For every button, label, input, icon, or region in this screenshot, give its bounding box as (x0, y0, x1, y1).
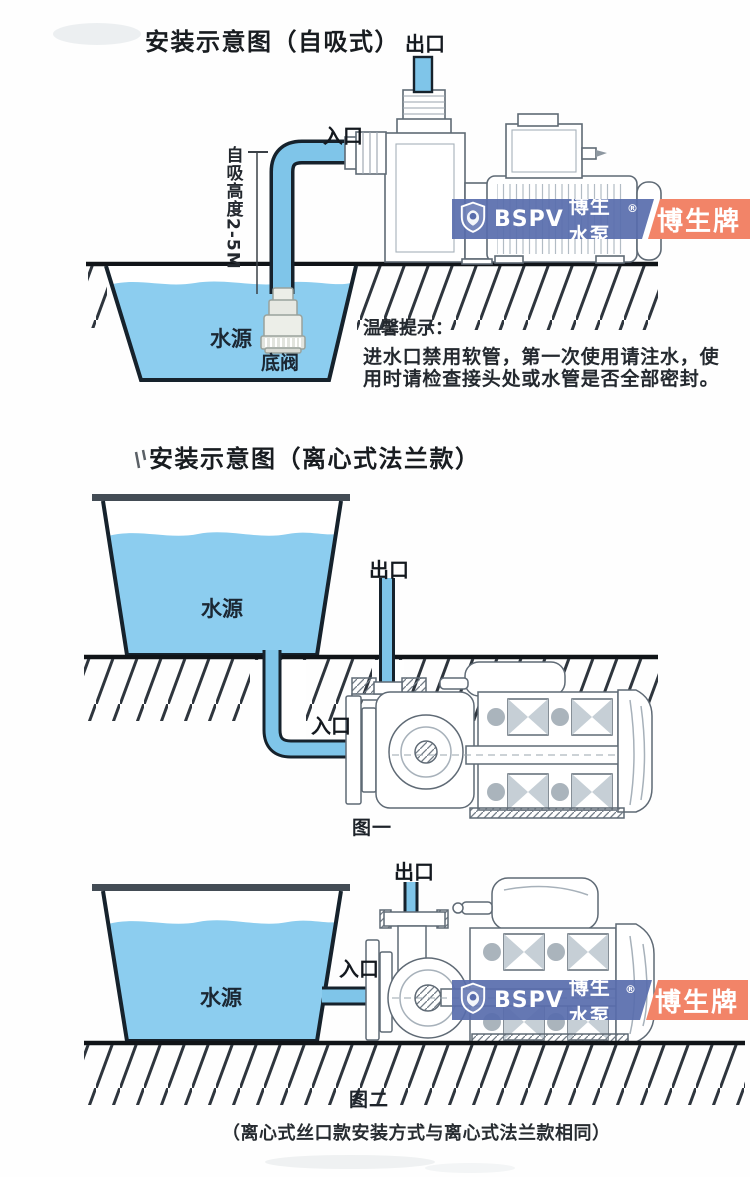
water-tank (103, 501, 341, 657)
watermark-badge-band: 博生牌 (646, 980, 748, 1020)
brand-watermark-2: BSPV 博生水泵 ® 博生牌 (452, 980, 748, 1020)
tank-rim (92, 884, 350, 891)
tips-line-1: 进水口禁用软管，第一次使用请注水，使 (363, 347, 719, 369)
footnote: （离心式丝口款安装方式与离心式法兰款相同） (222, 1124, 611, 1145)
watermark-badge-band: 博生牌 (648, 199, 750, 239)
installation-instruction-page: 安装示意图（自吸式） 出口 入口 自吸高度2-5M 水源 底阀 温馨提示： 进水… (0, 0, 750, 1177)
section1-title: 安装示意图（自吸式） (145, 29, 400, 57)
inlet-label-3: 入口 (339, 958, 379, 981)
water-tank-pit (106, 266, 356, 380)
section2-title: 安装示意图（离心式法兰款） (149, 446, 481, 474)
brand-watermark-1: BSPV 博生水泵 ® 博生牌 (452, 199, 750, 239)
outlet-label-2: 出口 (369, 559, 409, 582)
bspv-shield-icon (457, 201, 489, 237)
inlet-label-2: 入口 (311, 715, 351, 738)
outlet-label-1: 出口 (405, 33, 445, 56)
outlet-pipe-stub (414, 57, 432, 92)
watermark-badge-text: 博生牌 (655, 982, 739, 1019)
water-source-label-3: 水源 (200, 986, 242, 1010)
watermark-brand-en: BSPV (494, 207, 564, 232)
figure1-caption: 图一 (352, 818, 392, 840)
figure2-caption: 图二 (349, 1090, 389, 1112)
tips-line-2: 用时请检查接头处或水管是否全部密封。 (363, 369, 719, 391)
water-source-label-2: 水源 (201, 597, 243, 621)
water-tank (103, 891, 341, 1043)
outlet-label-3: 出口 (394, 861, 434, 884)
ground-hatching (84, 1045, 745, 1105)
watermark-badge-text: 博生牌 (657, 201, 741, 238)
ground-hatching-left (88, 266, 107, 328)
water-source-label-1: 水源 (210, 327, 252, 351)
watermark-brand-band: BSPV 博生水泵 ® (452, 980, 652, 1020)
diagram-centrifugal-fig1 (84, 494, 658, 818)
water (108, 532, 336, 653)
foot-valve-label: 底阀 (261, 353, 299, 375)
inlet-label-1: 入口 (323, 125, 363, 148)
registered-mark: ® (627, 202, 638, 215)
tips-heading: 温馨提示： (363, 319, 453, 340)
suction-height-label: 自吸高度2-5M (222, 146, 242, 280)
watermark-brand-band: BSPV 博生水泵 ® (452, 199, 654, 239)
watermark-brand-en: BSPV (494, 988, 564, 1013)
registered-mark: ® (625, 983, 636, 996)
tank-rim (92, 494, 350, 501)
bspv-shield-icon (457, 982, 489, 1018)
water (108, 920, 336, 1041)
